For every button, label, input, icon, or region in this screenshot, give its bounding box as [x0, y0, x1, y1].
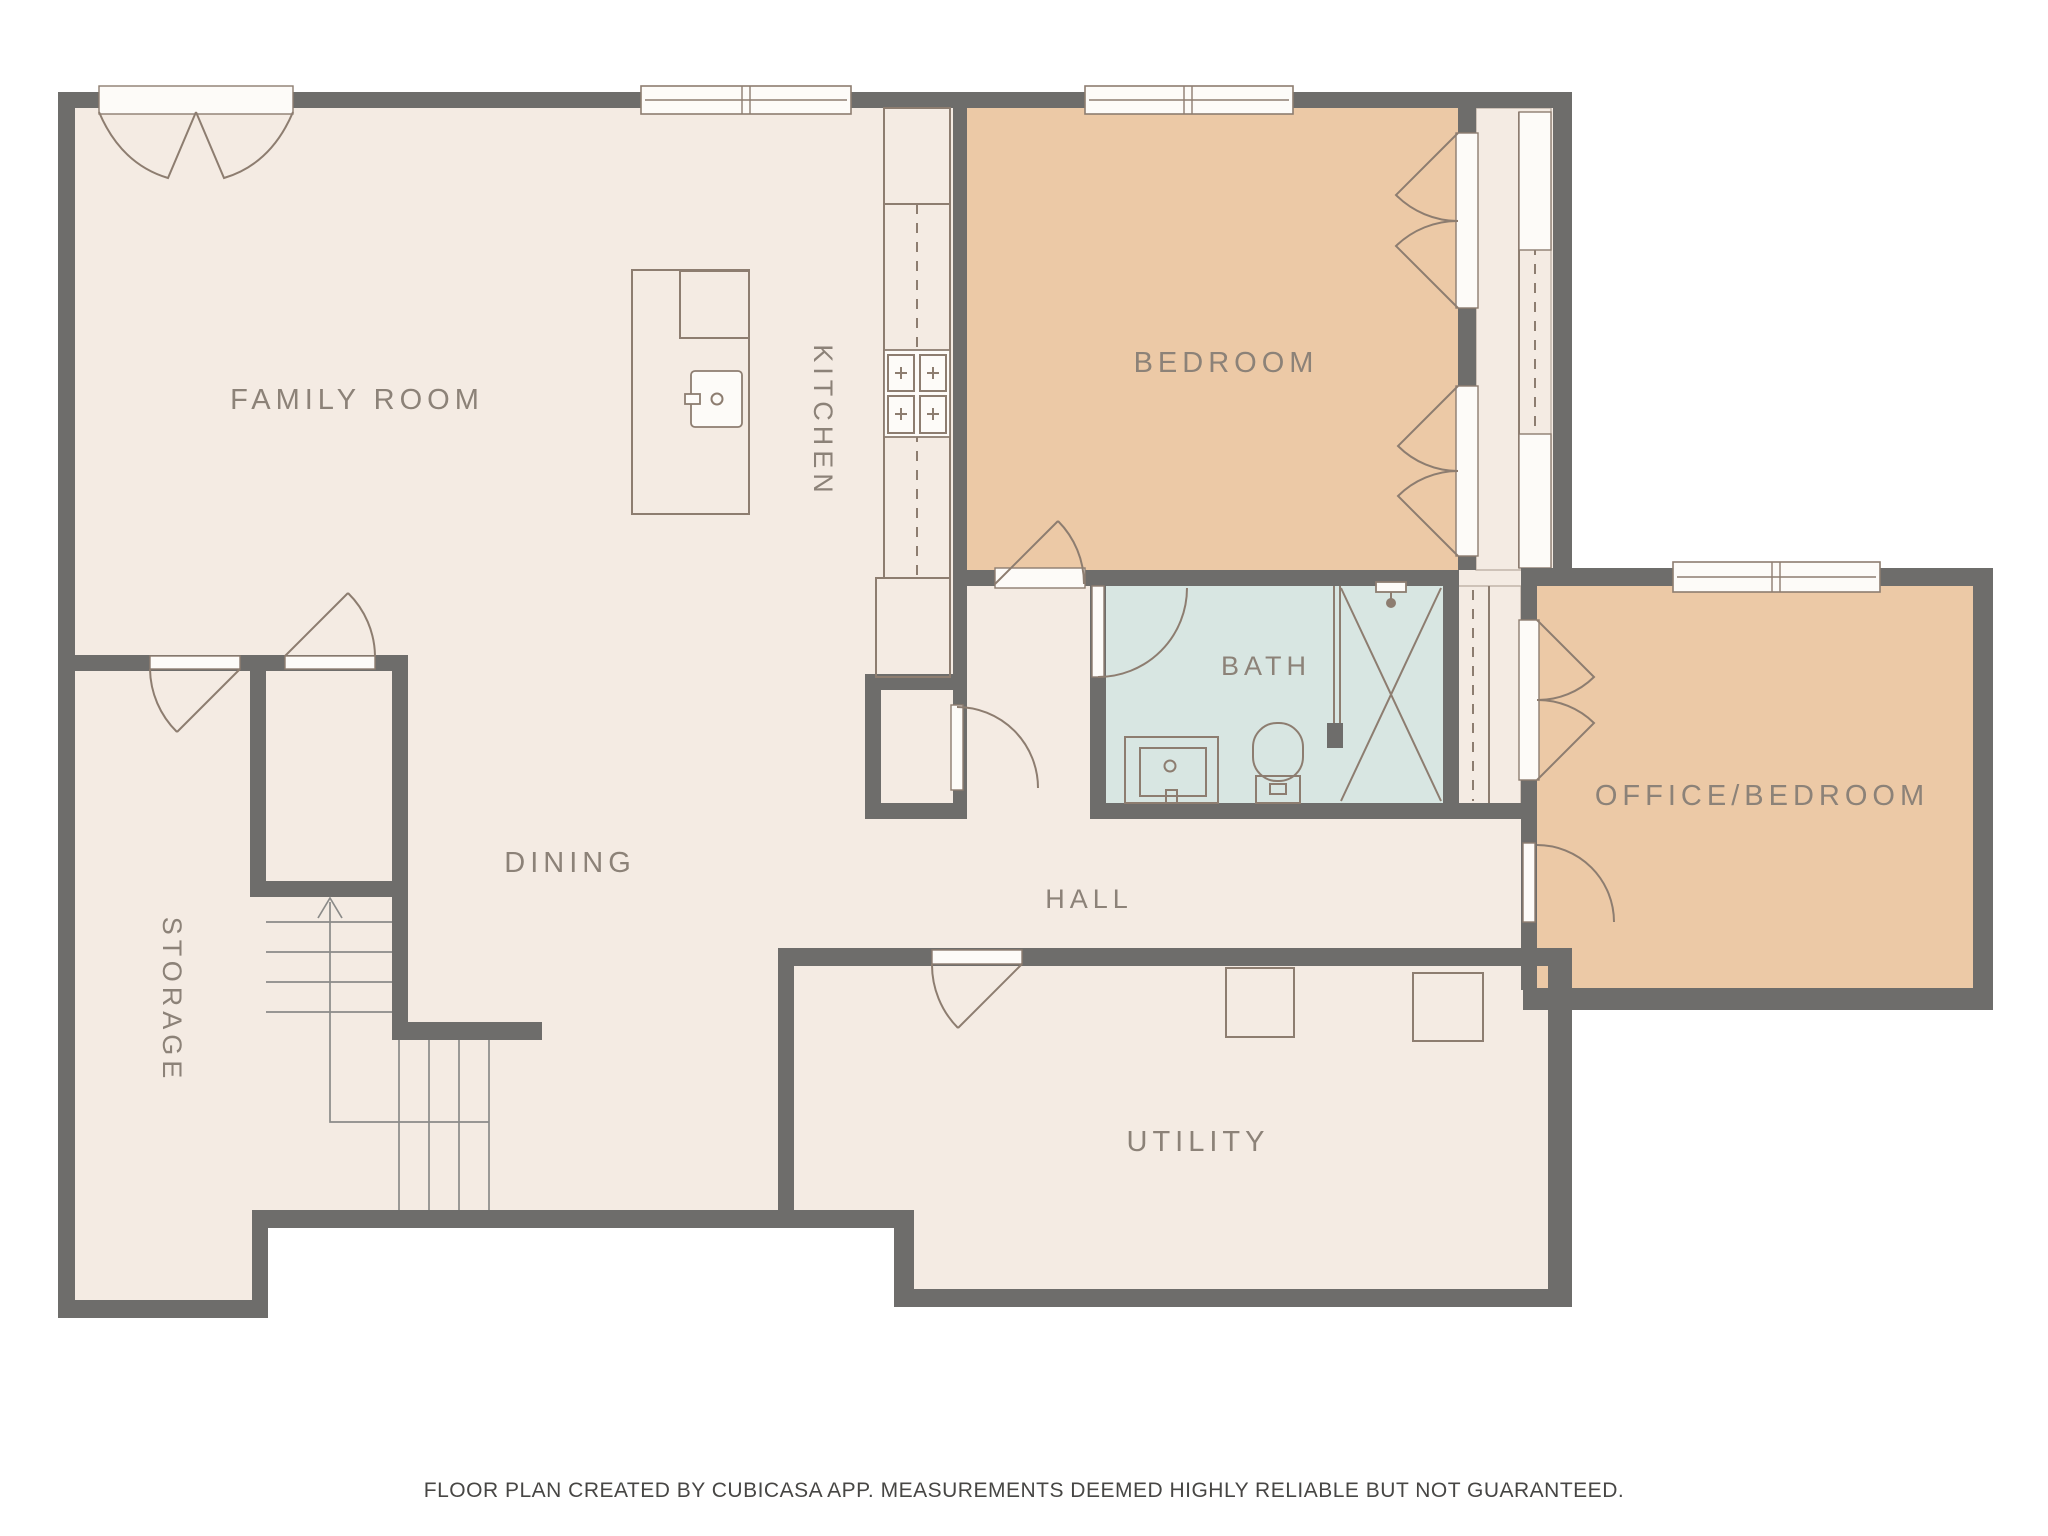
- floor-plan-page: FAMILY ROOM KITCHEN BEDROOM BATH OFFICE/…: [0, 0, 2048, 1536]
- stove: [884, 350, 950, 437]
- utility-door-leaf: [932, 950, 1022, 964]
- office-closet-opening: [1519, 620, 1539, 780]
- wall-hallcloset-left: [865, 674, 881, 819]
- room-label-office-bedroom: OFFICE/BEDROOM: [1595, 780, 1929, 812]
- wall-stairs-halfwall: [392, 1022, 542, 1040]
- room-label-dining: DINING: [504, 847, 636, 879]
- family-room-entry-opening: [99, 86, 293, 114]
- wall-utility-left: [778, 948, 794, 1228]
- room-label-storage: STORAGE: [157, 917, 187, 1084]
- shower-head-bracket: [1376, 582, 1406, 592]
- bedroom-closet-shelf-top: [1519, 112, 1551, 250]
- office-window: [1673, 562, 1880, 592]
- wall-stairs-top: [250, 881, 408, 897]
- bedroom-floor: [967, 108, 1458, 570]
- wall-office-bottom: [1523, 988, 1993, 1010]
- bedroom-closet-shelf-bottom: [1519, 434, 1551, 568]
- room-label-family-room: FAMILY ROOM: [230, 384, 484, 416]
- floor-plan-canvas: FAMILY ROOM KITCHEN BEDROOM BATH OFFICE/…: [0, 0, 2048, 1536]
- stair-closet-door-leaf: [285, 656, 375, 669]
- wall-utility-bottom: [894, 1289, 1572, 1307]
- office-door-leaf: [1523, 843, 1535, 922]
- room-label-hall: HALL: [1045, 884, 1133, 914]
- room-label-bath: BATH: [1221, 651, 1311, 681]
- island-sink-faucet: [685, 394, 700, 404]
- bath-floor: [1106, 586, 1443, 803]
- wall-hall-bottom: [778, 948, 1560, 966]
- wall-utility-right: [1548, 948, 1572, 1307]
- room-label-bedroom: BEDROOM: [1134, 347, 1319, 379]
- room-label-utility: UTILITY: [1127, 1126, 1270, 1158]
- wall-stairs-right: [392, 655, 408, 1040]
- kitchen-window: [641, 86, 851, 114]
- wall-storage-bottom: [58, 1300, 268, 1318]
- bedroom-closet-opening-upper: [1456, 133, 1478, 308]
- room-label-kitchen: KITCHEN: [808, 344, 838, 498]
- bedroom-window: [1085, 86, 1293, 114]
- hall-closet-door-leaf: [951, 705, 963, 790]
- wall-office-right: [1973, 568, 1993, 1010]
- wall-shower-stub: [1327, 723, 1343, 748]
- shower-head-icon: [1386, 598, 1396, 608]
- storage-door-leaf: [150, 656, 240, 669]
- wall-dining-bottom: [252, 1210, 914, 1228]
- bath-door-leaf: [1092, 586, 1104, 677]
- wall-storage-stair: [250, 655, 266, 897]
- wall-exterior-right-upper: [1553, 92, 1572, 586]
- wall-bath-bottom: [1090, 803, 1537, 819]
- wall-shower-east: [1443, 570, 1459, 819]
- bedroom-closet-opening-lower: [1456, 386, 1478, 556]
- wall-hallcloset-bottom: [865, 803, 967, 819]
- footer-disclaimer: FLOOR PLAN CREATED BY CUBICASA APP. MEAS…: [424, 1479, 1624, 1502]
- wall-exterior-left: [58, 92, 75, 1318]
